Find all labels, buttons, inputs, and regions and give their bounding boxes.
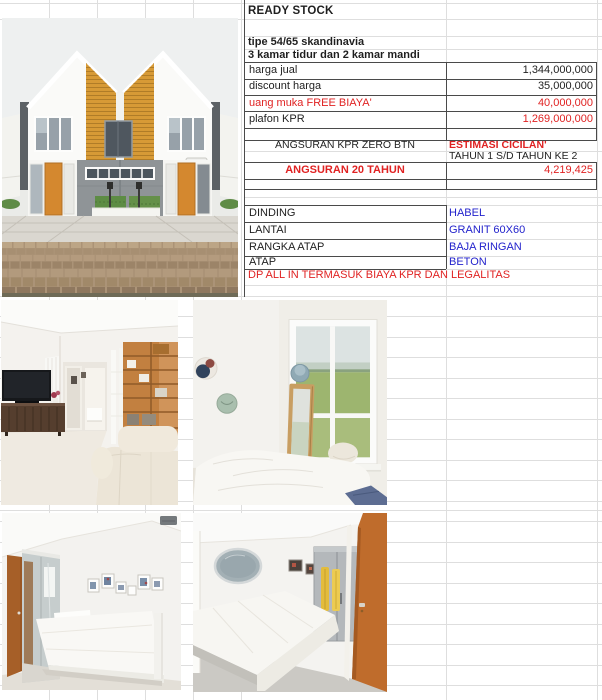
cell-rooms-line: 3 kamar tidur dan 2 kamar mandi [248,49,498,62]
cell-dp-note: DP ALL IN TERMASUK BIAYA KPR DAN LEGALIT… [248,269,597,283]
orange-door-right [178,163,195,215]
cell-border-line [446,62,447,141]
grid-line [244,197,602,198]
cell-border-line [244,128,597,129]
orange-door [7,555,22,677]
cell-border-line [244,189,597,190]
cell-discount-label: discount harga [249,79,439,96]
photo-house-exterior [2,18,238,297]
photo-bedroom-window [193,300,387,505]
photo-bedroom-mirror-wardrobe [2,513,181,690]
house-exterior-illustration [2,18,238,297]
grid-line [244,285,602,286]
spreadsheet-listing: READY STOCK tipe 54/65 skandinavia 3 kam… [0,0,602,700]
bed [36,611,164,675]
cell-discount-value: 35,000,000 [448,79,593,96]
cell-atap-label: ATAP [249,256,439,269]
driveway [2,216,238,242]
bedroom-mirror-illustration [2,513,181,690]
cell-program: ANGSURAN KPR ZERO BTN [244,140,446,151]
cell-rangka-value: BAJA RINGAN [449,239,594,256]
wall-plate-2 [217,394,237,414]
grid-line [0,510,602,511]
cell-border-line [596,162,597,189]
cell-lantai-label: LANTAI [249,222,439,239]
photo-living-room [1,300,178,505]
photo-bedroom-wardrobe-towels [193,513,387,692]
cell-period: TAHUN 1 S/D TAHUN KE 2 [449,151,595,162]
cell-tenor: ANGSURAN 20 TAHUN [244,162,446,179]
living-room-illustration [1,300,178,505]
cell-harga-jual-label: harga jual [249,62,439,79]
bedroom-wardrobe-illustration [193,513,387,692]
grid-line [597,0,598,700]
cell-uang-muka-value: 40,000,000 [448,95,593,111]
cell-dinding-value: HABEL [449,205,594,222]
cell-uang-muka-label: uang muka FREE BIAYA' [249,95,439,111]
cell-rangka-label: RANGKA ATAP [249,239,439,256]
cell-monthly: 4,219,425 [448,162,593,179]
cell-border-line [446,162,447,189]
cell-plafon-label: plafon KPR [249,111,439,128]
cell-type-line: tipe 54/65 skandinavia [248,35,498,49]
cell-border-line [596,62,597,141]
cell-atap-value: BETON [449,256,594,269]
orange-door-left [45,163,62,215]
cell-plafon-value: 1,269,000,000 [448,111,593,128]
cell-border-line [244,179,597,180]
cell-border-line [446,205,447,269]
divider-posts [111,350,116,444]
cell-dinding-label: DINDING [249,205,439,222]
bedroom-window-illustration [193,300,387,505]
cell-lantai-value: GRANIT 60X60 [449,222,594,239]
cell-harga-jual-value: 1,344,000,000 [448,62,593,79]
cell-ready-stock: READY STOCK [248,3,468,20]
floor [1,430,107,505]
